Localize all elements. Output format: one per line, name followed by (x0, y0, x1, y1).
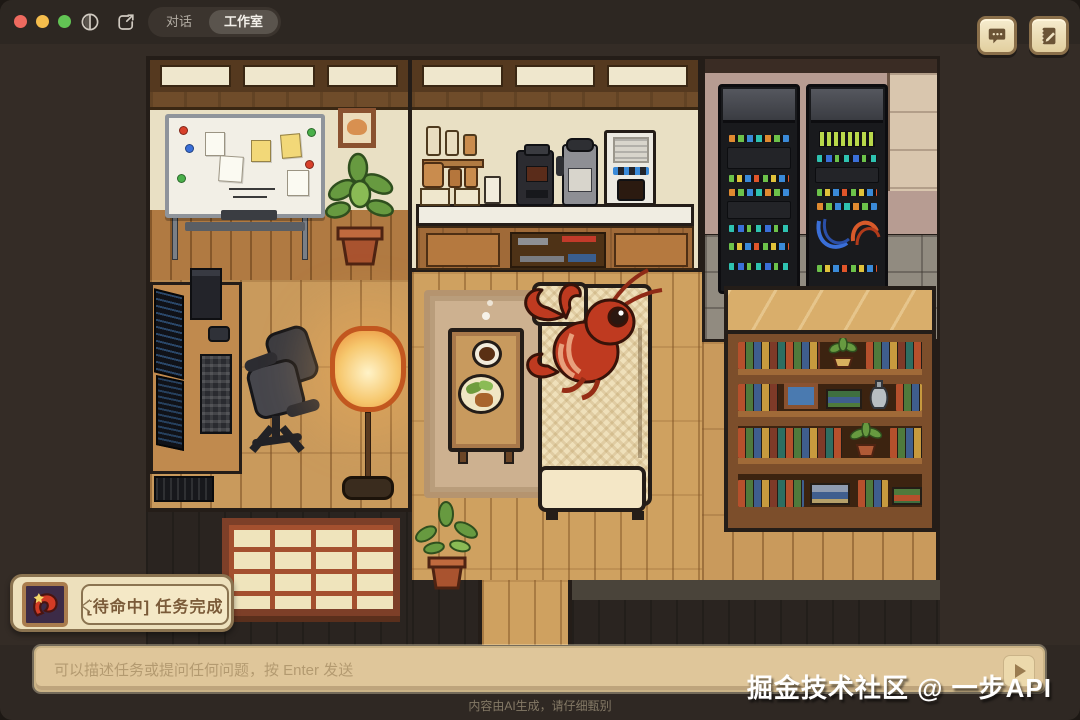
magnet-red (179, 126, 188, 135)
kitchen-room (408, 56, 702, 272)
sticky-note (218, 155, 244, 183)
kitchen-transom-windows (412, 60, 698, 92)
monitor (154, 288, 184, 379)
speech-bubble-icon (986, 25, 1008, 47)
espresso-machine (604, 130, 656, 206)
left-transom-windows (150, 60, 408, 92)
flat-book-stack (810, 483, 850, 505)
potted-plant-small (412, 500, 482, 594)
shelf-picture (784, 383, 818, 409)
magnet-blue (185, 144, 194, 153)
notes-button[interactable] (1029, 16, 1069, 55)
magnet-green (177, 174, 186, 183)
server-rack-left (718, 84, 800, 294)
magnet-red (305, 160, 314, 169)
keyboard (200, 354, 232, 434)
minimize-button[interactable] (36, 15, 49, 28)
server-rack-right (806, 84, 888, 294)
shelf-bottle (868, 380, 890, 410)
speaker (208, 326, 230, 342)
cat-picture (338, 108, 376, 148)
mug (484, 176, 501, 204)
status-text: [待命中] 任务完成 (86, 593, 223, 617)
status-speech-bubble: [待命中] 任务完成 (81, 584, 229, 625)
canister-set (420, 160, 478, 206)
close-button[interactable] (14, 15, 27, 28)
titlebar: 对话 工作室 (0, 0, 1080, 44)
app-window: 对话 工作室 [待命中] 任务完成 (0, 0, 1080, 720)
kitchen-counter (416, 204, 694, 226)
flat-book-stack (826, 389, 862, 409)
coffee-steam (487, 300, 493, 306)
floor-lamp (326, 326, 412, 508)
whiteboard (165, 114, 325, 218)
chat-button[interactable] (977, 16, 1017, 55)
zoom-button[interactable] (58, 15, 71, 28)
coffee-grinder (516, 150, 554, 206)
coffee-cup (472, 340, 502, 368)
shelf-plant (826, 338, 860, 368)
ledge-right (572, 580, 940, 600)
lobster-character[interactable] (514, 260, 670, 412)
marker-tray (221, 210, 277, 220)
whiteboard-tray (185, 222, 305, 231)
game-scene-canvas[interactable] (0, 44, 1080, 645)
sticky-note (205, 132, 225, 156)
flat-book-stack (892, 487, 922, 505)
magnet-green (307, 128, 316, 137)
exterior-wall-right (572, 600, 940, 645)
sticky-note (287, 170, 309, 196)
left-room (146, 56, 412, 512)
coffee-steam (482, 312, 490, 320)
notebook-pencil-icon (1038, 25, 1060, 47)
office-chair (242, 328, 318, 458)
snack-plate (458, 374, 504, 414)
bookshelf (724, 286, 936, 532)
board-scribble (233, 196, 267, 198)
kitchen-beam (412, 92, 698, 110)
shoji-window (222, 518, 400, 616)
pc-tower (190, 268, 222, 320)
cat-art (347, 119, 367, 135)
status-badge: [待命中] 任务完成 (10, 574, 234, 632)
monitor (156, 375, 184, 451)
walkway (478, 580, 572, 645)
share-icon[interactable] (116, 12, 136, 32)
tab-conversation[interactable]: 对话 (151, 10, 207, 34)
kettle (562, 144, 598, 206)
board-scribble (229, 188, 275, 190)
sticky-note (280, 133, 302, 159)
tab-group: 对话 工作室 (148, 7, 281, 37)
shelf-plant (848, 423, 884, 457)
potted-plant-large (322, 148, 398, 270)
sidebar-toggle-icon[interactable] (80, 12, 100, 32)
server-cables (813, 213, 885, 259)
watermark: 掘金技术社区 @ 一步API (747, 668, 1052, 705)
lobster-portrait (22, 582, 68, 627)
desk-vent (154, 476, 214, 502)
sticky-note (251, 140, 271, 162)
tab-studio[interactable]: 工作室 (209, 10, 278, 34)
